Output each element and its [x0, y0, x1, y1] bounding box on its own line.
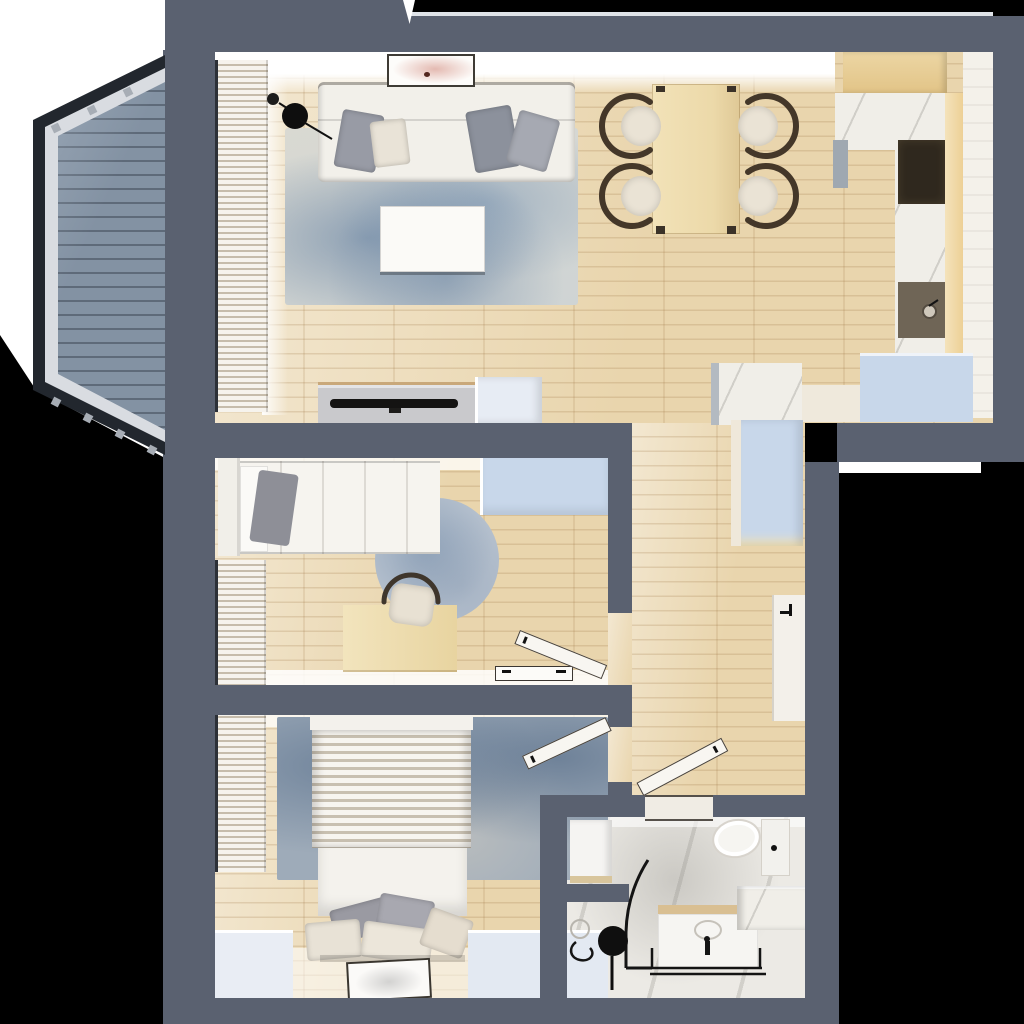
dining-table — [652, 84, 740, 234]
storage-cube — [475, 377, 542, 423]
dining-chair — [621, 106, 661, 146]
kitchen-faucet — [924, 306, 935, 317]
wall — [163, 423, 632, 458]
wall — [408, 16, 993, 52]
table-leg — [727, 226, 736, 234]
hall-wardrobe-edge — [731, 420, 741, 546]
sill-detail — [502, 670, 511, 673]
entry-cabinet — [802, 385, 860, 422]
dining-chair — [738, 106, 778, 146]
entry-cabinet-edge — [711, 363, 719, 425]
folded-blanket — [312, 730, 471, 848]
tv-stand — [389, 408, 401, 413]
door-sill — [645, 795, 713, 821]
door-handle — [713, 746, 719, 754]
door-handle — [530, 755, 536, 763]
wall — [163, 50, 215, 998]
sill-detail — [556, 670, 566, 673]
balcony — [25, 50, 170, 460]
hall-wardrobe — [741, 420, 803, 546]
toilet-flush-button — [771, 845, 777, 851]
kitchen-upper-cabinet — [843, 52, 947, 93]
table-leg — [656, 226, 665, 234]
marble-bench — [737, 886, 805, 930]
cooktop — [898, 140, 945, 204]
floor-plan — [0, 0, 1024, 1024]
wall — [163, 998, 839, 1024]
bedside-bench — [468, 930, 608, 998]
coffee-table — [380, 206, 485, 272]
desk-chair — [387, 582, 436, 628]
wall — [993, 16, 1024, 462]
washer-front-edge — [570, 876, 612, 883]
throw-pillow — [369, 118, 410, 168]
wall — [608, 458, 632, 613]
window-blinds — [215, 60, 268, 412]
wall — [163, 685, 632, 715]
bedside-bench — [215, 930, 293, 998]
kitchen-sink — [898, 282, 945, 338]
wall — [608, 715, 632, 727]
dining-chair — [738, 176, 778, 216]
wall — [805, 462, 839, 1024]
wardrobe — [480, 458, 608, 515]
window-blinds — [215, 560, 266, 688]
wall — [567, 884, 629, 902]
entry-closet — [860, 353, 973, 422]
door-handle — [522, 636, 527, 644]
dining-chair — [621, 176, 661, 216]
wall-art-detail — [424, 72, 430, 77]
wall — [610, 795, 645, 817]
single-bed-headboard — [218, 458, 240, 556]
cabinet-handle — [789, 604, 792, 616]
tv — [330, 399, 458, 408]
kitchen-cabinet-side — [833, 140, 848, 188]
table-leg — [727, 86, 736, 92]
door-opening — [608, 613, 632, 685]
entry-cabinet-marble — [713, 363, 802, 425]
wall — [713, 795, 805, 817]
wall — [165, 0, 408, 52]
wall — [837, 423, 1024, 462]
wall — [540, 817, 567, 998]
door-sill-board — [495, 666, 573, 681]
window-blinds — [215, 700, 266, 872]
door-opening — [608, 727, 632, 782]
floor-tray — [346, 958, 432, 1002]
washing-machine — [570, 820, 612, 882]
wall-art — [387, 54, 475, 87]
table-leg — [656, 86, 665, 92]
